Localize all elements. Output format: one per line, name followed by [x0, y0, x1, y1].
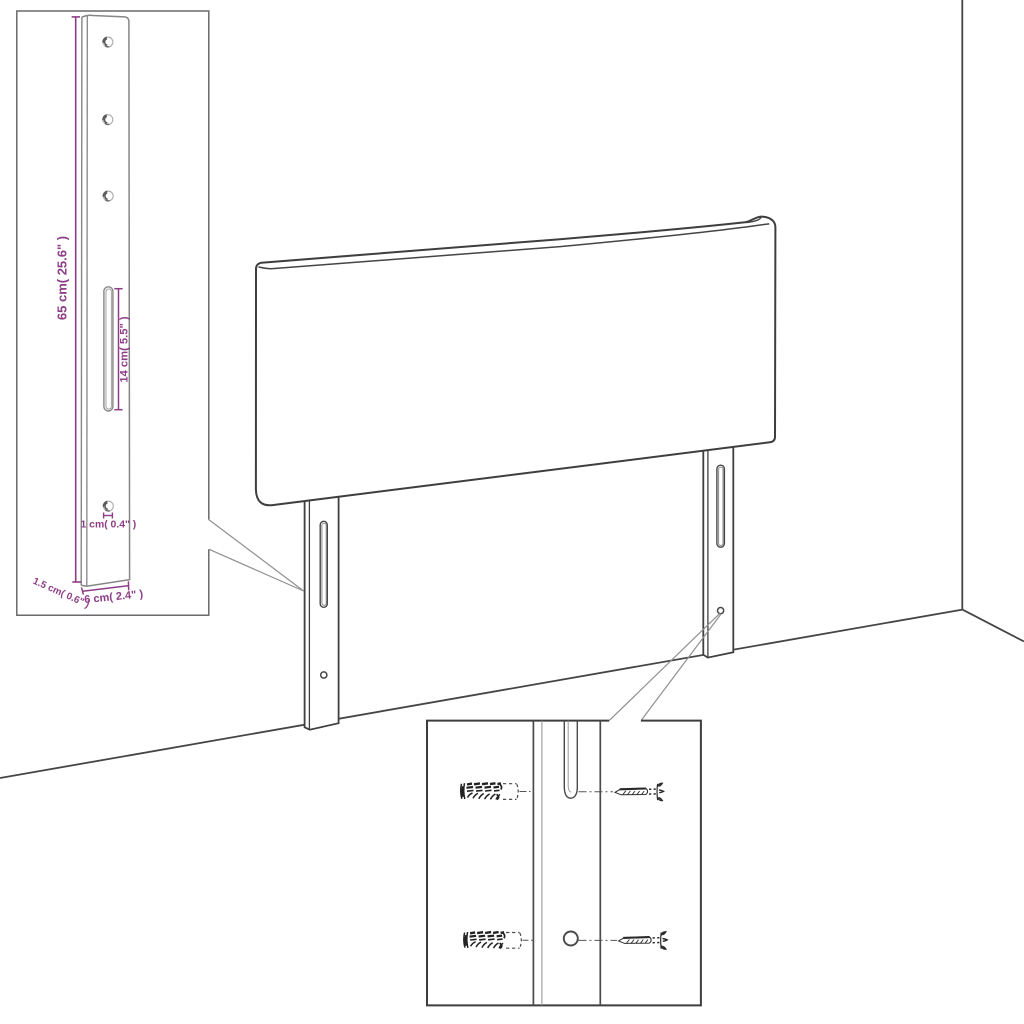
svg-text:1 cm( 0.4" ): 1 cm( 0.4" ): [81, 520, 137, 531]
svg-text:65 cm( 25.6" ): 65 cm( 25.6" ): [55, 236, 70, 320]
svg-text:14 cm( 5.5" ): 14 cm( 5.5" ): [119, 316, 131, 383]
